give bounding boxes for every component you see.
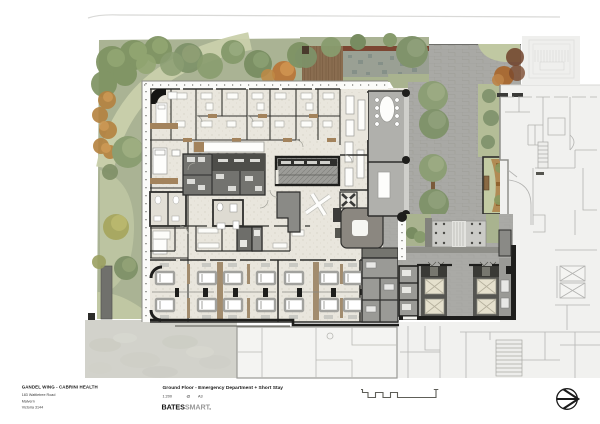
svg-text:1:200: 1:200 — [163, 394, 173, 398]
svg-text:Ground Floor - Emergency Depar: Ground Floor - Emergency Department + Sh… — [163, 385, 284, 391]
svg-text:Victoria 3144: Victoria 3144 — [22, 406, 43, 410]
svg-text:183 Wattletree Road: 183 Wattletree Road — [22, 393, 56, 397]
svg-text:GANDEL WING - CABRINI HEALTH: GANDEL WING - CABRINI HEALTH — [22, 384, 98, 389]
svg-text:@: @ — [187, 394, 191, 398]
svg-text:Malvern: Malvern — [22, 399, 35, 403]
svg-text:BATESSMART.: BATESSMART. — [162, 402, 212, 411]
svg-text:A3: A3 — [198, 394, 203, 398]
